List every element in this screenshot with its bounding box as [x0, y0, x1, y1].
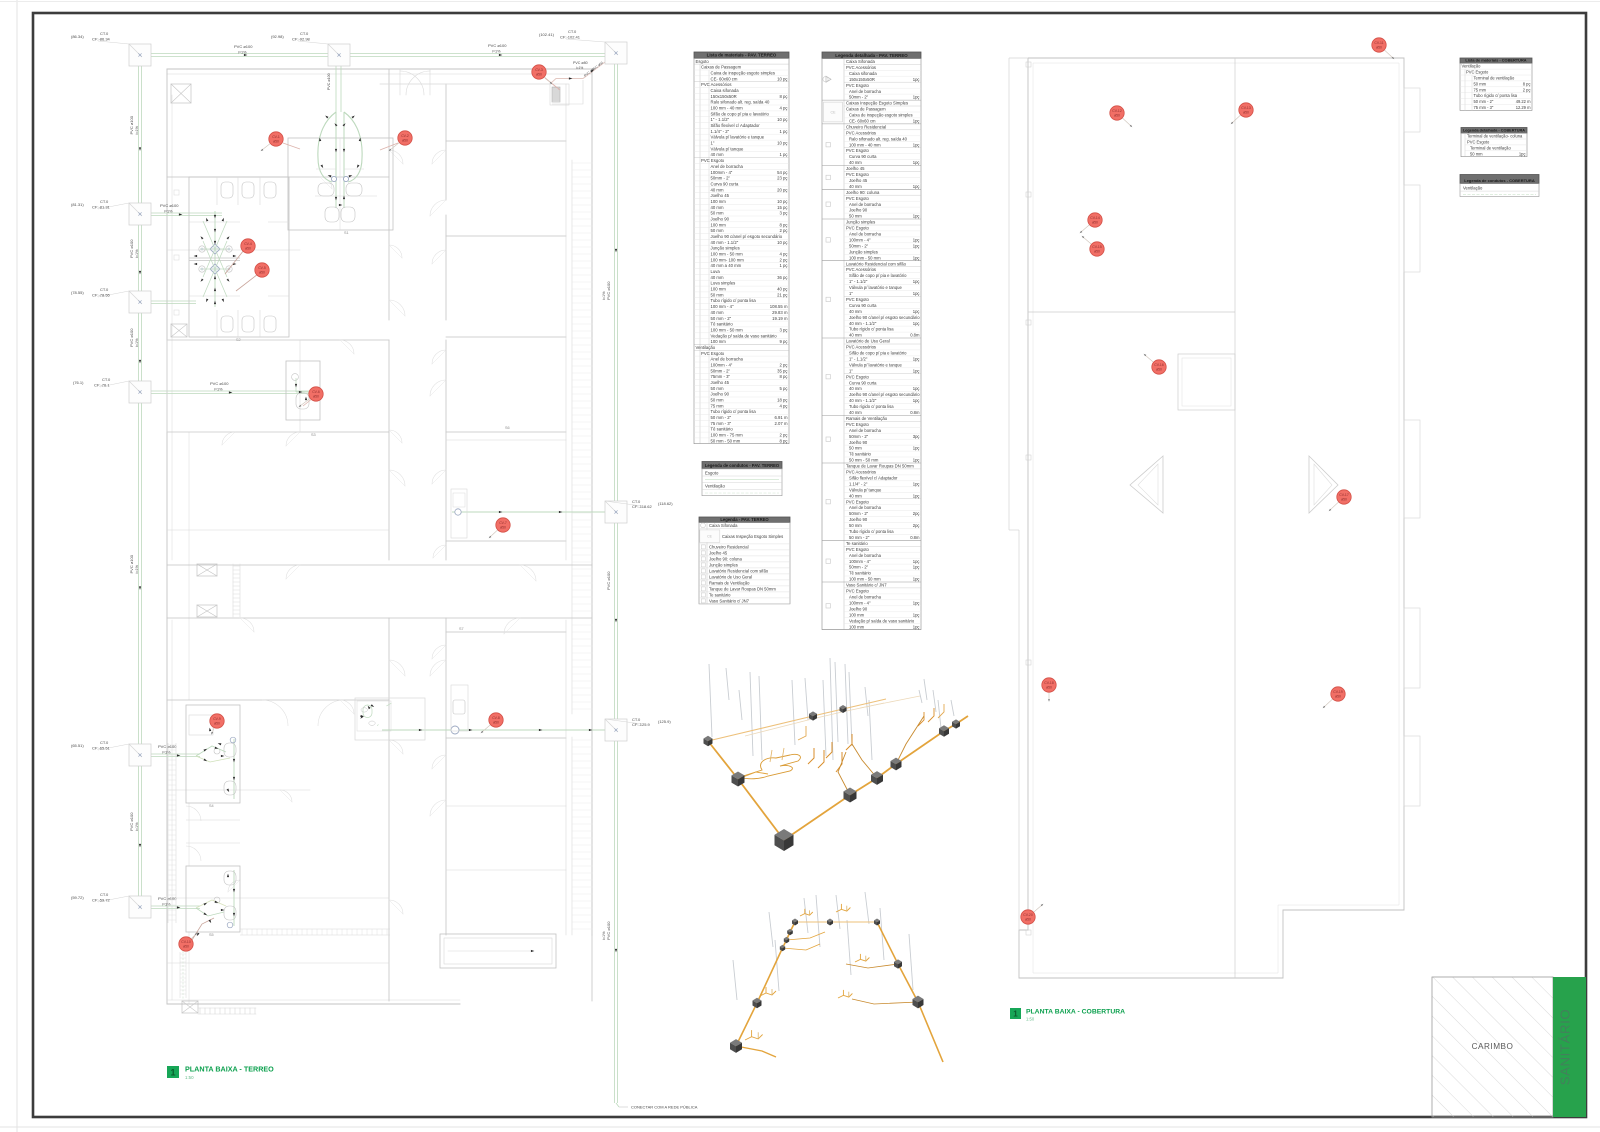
svg-text:ø50: ø50 — [1376, 46, 1382, 50]
svg-text:1: 1 — [170, 1068, 175, 1078]
svg-text:PVC Acessórios: PVC Acessórios — [701, 82, 731, 87]
svg-text:Curva 90 curta: Curva 90 curta — [849, 303, 877, 308]
svg-text:1" - 1.1/2": 1" - 1.1/2" — [711, 117, 730, 122]
svg-text:ø50: ø50 — [493, 721, 499, 725]
svg-text:Ramais de Ventilação: Ramais de Ventilação — [846, 416, 888, 421]
svg-text:1pç: 1pç — [913, 398, 920, 403]
svg-text:PVC Acessórios: PVC Acessórios — [846, 267, 876, 272]
svg-text:Ramais de Ventilação: Ramais de Ventilação — [709, 581, 750, 586]
svg-text:Esgoto: Esgoto — [696, 59, 710, 64]
svg-text:50 mm: 50 mm — [711, 398, 724, 403]
svg-text:100 mm - 50 mm: 100 mm - 50 mm — [711, 327, 744, 332]
svg-text:Sifão flexível c/ Adaptador: Sifão flexível c/ Adaptador — [711, 123, 761, 128]
svg-text:2pç: 2pç — [913, 523, 920, 528]
svg-text:ø50: ø50 — [273, 140, 279, 144]
svg-text:Tê sanitário: Tê sanitário — [849, 452, 872, 457]
svg-text:Tanque de Lavar Roupas DN 50mm: Tanque de Lavar Roupas DN 50mm — [846, 464, 914, 469]
svg-text:CV-16: CV-16 — [1154, 363, 1164, 367]
svg-text:CV-18: CV-18 — [1044, 681, 1054, 685]
svg-text:100 mm: 100 mm — [711, 199, 727, 204]
svg-text:ø50: ø50 — [1114, 114, 1120, 118]
svg-text:Lavatório de Uso Geral: Lavatório de Uso Geral — [846, 339, 890, 344]
svg-text:10 pç: 10 pç — [777, 141, 788, 146]
svg-text:CT.0: CT.0 — [100, 287, 109, 292]
svg-text:Anel de borracha: Anel de borracha — [849, 428, 882, 433]
svg-text:PVC Esgoto: PVC Esgoto — [846, 589, 869, 594]
svg-text:Joelho 90: coluna: Joelho 90: coluna — [709, 557, 742, 562]
svg-text:3pç: 3pç — [913, 434, 920, 439]
svg-text:29.83 m: 29.83 m — [772, 310, 788, 315]
svg-text:Anel de borracha: Anel de borracha — [849, 595, 882, 600]
svg-text:40 mm: 40 mm — [711, 310, 724, 315]
svg-text:CV-12: CV-12 — [1112, 109, 1122, 113]
svg-text:CT.0: CT.0 — [100, 892, 109, 897]
svg-text:Curva 90 curta: Curva 90 curta — [849, 154, 877, 159]
svg-text:1pç: 1pç — [913, 309, 920, 314]
svg-text:50mm - 2": 50mm - 2" — [849, 95, 869, 100]
svg-text:PVC Esgoto: PVC Esgoto — [701, 158, 725, 163]
svg-text:CONECTAR COM A REDE PÚBLICA: CONECTAR COM A REDE PÚBLICA — [631, 1105, 698, 1110]
svg-text:Lista de materiais - COBERTURA: Lista de materiais - COBERTURA — [1465, 58, 1526, 63]
svg-text:PVC Esgoto: PVC Esgoto — [846, 172, 869, 177]
svg-text:CV-7: CV-7 — [499, 521, 507, 525]
svg-text:15 pç: 15 pç — [777, 205, 788, 210]
svg-text:1.1/4" - 2": 1.1/4" - 2" — [849, 481, 868, 486]
svg-text:100 mm: 100 mm — [711, 222, 727, 227]
svg-text:Joelho 90 c/anel p/ esgoto sec: Joelho 90 c/anel p/ esgoto secundário — [711, 234, 783, 239]
svg-text:1pç: 1pç — [913, 446, 920, 451]
svg-text:PVC Esgoto: PVC Esgoto — [1466, 70, 1489, 75]
svg-text:100 mm - 75 mm: 100 mm - 75 mm — [711, 433, 744, 438]
svg-text:Te sanitário: Te sanitário — [846, 541, 868, 546]
svg-text:50 mm - 2": 50 mm - 2" — [849, 535, 870, 540]
svg-text:Junção simples: Junção simples — [846, 220, 875, 225]
svg-text:10 pç: 10 pç — [777, 240, 788, 245]
svg-text:S6: S6 — [505, 426, 510, 430]
svg-text:PVC Esgoto: PVC Esgoto — [846, 422, 869, 427]
svg-text:PVC Esgoto: PVC Esgoto — [846, 374, 869, 379]
svg-text:1pç: 1pç — [913, 255, 920, 260]
svg-text:ø50: ø50 — [1025, 918, 1031, 922]
svg-text:100 mm - 40 mm: 100 mm - 40 mm — [711, 106, 744, 111]
svg-text:40 mm a 40 mm: 40 mm a 40 mm — [711, 263, 742, 268]
svg-text:CV-13: CV-13 — [1241, 106, 1251, 110]
svg-text:100 mm - 4": 100 mm - 4" — [711, 304, 734, 309]
svg-text:ø50: ø50 — [536, 73, 542, 77]
svg-text:2 pç: 2 pç — [779, 433, 788, 438]
svg-text:Caixas de Passagem: Caixas de Passagem — [846, 107, 886, 112]
svg-text:PLANTA BAIXA - COBERTURA: PLANTA BAIXA - COBERTURA — [1026, 1009, 1125, 1016]
svg-text:1pç: 1pç — [913, 559, 920, 564]
svg-text:75 mm - 3": 75 mm - 3" — [711, 421, 732, 426]
svg-text:1": 1" — [849, 291, 853, 296]
svg-text:1pç: 1pç — [1519, 151, 1526, 156]
svg-text:40 mm: 40 mm — [849, 410, 862, 415]
svg-text:35 pç: 35 pç — [777, 368, 788, 373]
svg-text:Terminal de ventilação: Terminal de ventilação — [1470, 145, 1511, 150]
svg-text:150x150x50R: 150x150x50R — [711, 94, 737, 99]
svg-text:CF:-102.41: CF:-102.41 — [560, 35, 581, 40]
svg-text:(102.41): (102.41) — [539, 32, 555, 37]
svg-text:PVC ø100: PVC ø100 — [234, 44, 253, 49]
svg-text:CE: CE — [707, 535, 713, 539]
svg-text:PVC ø100: PVC ø100 — [129, 554, 134, 573]
svg-text:ø50: ø50 — [313, 395, 319, 399]
svg-text:40 mm: 40 mm — [849, 309, 862, 314]
svg-text:CV-19: CV-19 — [1333, 690, 1343, 694]
svg-text:100 mm: 100 mm — [849, 612, 865, 617]
svg-text:i=1%: i=1% — [162, 903, 171, 907]
svg-text:Caixas de Passagem: Caixas de Passagem — [701, 65, 742, 70]
svg-text:50mm - 2": 50mm - 2" — [711, 368, 731, 373]
svg-text:(125.9): (125.9) — [658, 719, 671, 724]
svg-text:Sifão de copo p/ pia e lavatór: Sifão de copo p/ pia e lavatório — [711, 111, 770, 116]
svg-text:Legenda de condutos - PAV. TER: Legenda de condutos - PAV. TERREO — [705, 463, 780, 468]
svg-text:Joelho 45: Joelho 45 — [709, 551, 728, 556]
svg-text:49.22 m: 49.22 m — [1516, 99, 1531, 104]
svg-text:1": 1" — [711, 141, 715, 146]
svg-text:ø50: ø50 — [1094, 250, 1100, 254]
svg-text:Sifão de copo p/ pia e lavatór: Sifão de copo p/ pia e lavatório — [849, 273, 907, 278]
svg-text:PVC Esgoto: PVC Esgoto — [1467, 140, 1490, 145]
svg-text:CV-4: CV-4 — [244, 242, 252, 246]
svg-text:1:50: 1:50 — [1026, 1017, 1035, 1022]
svg-text:Chuveiro Residencial: Chuveiro Residencial — [846, 125, 886, 130]
svg-text:CF:-59.72: CF:-59.72 — [92, 898, 111, 903]
svg-text:50 mm - 50 mm: 50 mm - 50 mm — [711, 438, 741, 443]
svg-text:CT.0: CT.0 — [568, 29, 577, 34]
svg-text:50 mm - 2": 50 mm - 2" — [711, 316, 732, 321]
svg-text:(92.98): (92.98) — [271, 34, 284, 39]
svg-text:4 pç: 4 pç — [779, 403, 788, 408]
svg-text:Joelho 90: Joelho 90 — [711, 392, 730, 397]
svg-text:Ralo sifonado alt. reg. saída: Ralo sifonado alt. reg. saída 40 — [849, 136, 908, 141]
svg-text:CV-9: CV-9 — [213, 717, 221, 721]
svg-text:CF:-78.55: CF:-78.55 — [92, 293, 111, 298]
svg-text:40 mm: 40 mm — [711, 187, 724, 192]
svg-text:1pç: 1pç — [913, 612, 920, 617]
svg-text:Anel de borracha: Anel de borracha — [849, 505, 882, 510]
svg-text:40 mm: 40 mm — [849, 160, 862, 165]
svg-text:2 pç: 2 pç — [779, 363, 788, 368]
svg-text:Joelho 45: Joelho 45 — [711, 380, 730, 385]
svg-text:75mm - 3": 75mm - 3" — [711, 374, 731, 379]
svg-text:CARIMBO: CARIMBO — [1472, 1042, 1514, 1051]
svg-text:20 pç: 20 pç — [777, 187, 788, 192]
svg-text:Vedação p/ saída de vaso sanit: Vedação p/ saída de vaso sanitário — [849, 618, 915, 623]
svg-text:50mm - 2": 50mm - 2" — [849, 434, 869, 439]
svg-text:Lista de materiais - PAV. TERR: Lista de materiais - PAV. TERREO — [707, 53, 777, 58]
svg-text:Curva 90 curta: Curva 90 curta — [849, 380, 877, 385]
svg-text:Válvula p/ lavatório e tanque: Válvula p/ lavatório e tanque — [711, 135, 765, 140]
svg-text:i=1%: i=1% — [602, 931, 606, 940]
svg-text:1pç: 1pç — [913, 243, 920, 248]
svg-text:40 mm - 1.1/2": 40 mm - 1.1/2" — [711, 240, 739, 245]
svg-text:1pç: 1pç — [913, 142, 920, 147]
svg-text:ø50: ø50 — [259, 271, 265, 275]
svg-text:6.91 m: 6.91 m — [775, 415, 788, 420]
svg-text:Terminal de ventilação: Terminal de ventilação — [1474, 76, 1515, 81]
svg-text:CT.0: CT.0 — [100, 31, 109, 36]
svg-text:i=1%: i=1% — [214, 388, 223, 392]
svg-text:CV-10: CV-10 — [181, 940, 191, 944]
svg-text:Tubo rígido c/ ponta lisa: Tubo rígido c/ ponta lisa — [1474, 93, 1518, 98]
svg-text:2 pç: 2 pç — [779, 228, 788, 233]
svg-text:PLANTA BAIXA - TERREO: PLANTA BAIXA - TERREO — [185, 1065, 274, 1074]
svg-text:Válvula p/ lavatório e tanque: Válvula p/ lavatório e tanque — [849, 285, 903, 290]
svg-text:CT.0: CT.0 — [100, 740, 109, 745]
svg-text:100mm - 4": 100mm - 4" — [849, 600, 871, 605]
svg-text:40 mm: 40 mm — [711, 152, 724, 157]
svg-text:50 mm: 50 mm — [711, 211, 724, 216]
svg-text:8 pç: 8 pç — [779, 438, 788, 443]
svg-text:ø50: ø50 — [1335, 695, 1341, 699]
svg-text:PVC Esgoto: PVC Esgoto — [846, 196, 869, 201]
svg-text:(59.72): (59.72) — [71, 895, 84, 900]
svg-text:Lavatório Residencial com sif: Lavatório Residencial com sifão — [709, 569, 769, 574]
svg-text:CV-2: CV-2 — [401, 134, 409, 138]
svg-text:1pç: 1pç — [913, 624, 920, 629]
svg-text:Luva: Luva — [711, 269, 721, 274]
svg-text:Joelho 45: Joelho 45 — [711, 193, 730, 198]
svg-text:50 mm: 50 mm — [711, 228, 724, 233]
svg-text:1pç: 1pç — [913, 565, 920, 570]
svg-text:8 pç: 8 pç — [779, 374, 788, 379]
svg-text:40 pç: 40 pç — [777, 287, 788, 292]
svg-text:CV-6: CV-6 — [312, 390, 320, 394]
svg-text:ø50: ø50 — [1341, 498, 1347, 502]
svg-text:i=1%: i=1% — [164, 210, 173, 214]
svg-text:Vedação p/ saída de vaso sanit: Vedação p/ saída de vaso sanitário — [711, 333, 778, 338]
svg-text:Anel de borracha: Anel de borracha — [711, 357, 744, 362]
svg-text:1pç: 1pç — [913, 458, 920, 463]
svg-text:1pç: 1pç — [913, 279, 920, 284]
svg-text:Joelho 90: Joelho 90 — [849, 517, 868, 522]
svg-text:CE- 60x60 cm: CE- 60x60 cm — [711, 76, 738, 81]
svg-text:ø50: ø50 — [500, 526, 506, 530]
svg-text:1pç: 1pç — [913, 481, 920, 486]
svg-text:1.1/4" - 2": 1.1/4" - 2" — [711, 129, 730, 134]
svg-text:CV-11: CV-11 — [1374, 41, 1383, 45]
svg-text:S4: S4 — [209, 804, 214, 808]
svg-text:10 pç: 10 pç — [777, 117, 788, 122]
svg-text:0.8m: 0.8m — [910, 410, 920, 415]
svg-text:PVC ø100: PVC ø100 — [606, 921, 611, 940]
svg-text:ø50: ø50 — [1156, 368, 1162, 372]
svg-text:Legenda detalhada - COBERTURA: Legenda detalhada - COBERTURA — [1463, 129, 1525, 133]
svg-text:1pç: 1pç — [913, 291, 920, 296]
svg-text:CT.0: CT.0 — [102, 377, 111, 382]
svg-text:CF:-92.98: CF:-92.98 — [292, 37, 311, 42]
svg-text:75 mm: 75 mm — [711, 403, 724, 408]
svg-text:Anel de borracha: Anel de borracha — [711, 164, 744, 169]
svg-text:Joelho 45: Joelho 45 — [846, 166, 865, 171]
svg-text:i=1%: i=1% — [135, 338, 139, 347]
svg-text:Tê sanitário: Tê sanitário — [849, 571, 872, 576]
svg-text:CV-8: CV-8 — [492, 716, 500, 720]
svg-text:Caixa sifonada: Caixa sifonada — [711, 88, 740, 93]
svg-text:Joelho 90: Joelho 90 — [849, 606, 868, 611]
svg-text:100mm - 4": 100mm - 4" — [849, 559, 871, 564]
svg-text:CF:-65.51: CF:-65.51 — [92, 746, 111, 751]
svg-text:40 mm - 1.1/2": 40 mm - 1.1/2" — [849, 398, 877, 403]
svg-text:PVC Acessórios: PVC Acessórios — [846, 65, 876, 70]
svg-text:CV-15: CV-15 — [1092, 245, 1102, 249]
svg-text:Caixas Inspeção Esgoto Simpl: Caixas Inspeção Esgoto Simples — [722, 534, 783, 539]
svg-text:PVC Esgoto: PVC Esgoto — [846, 83, 869, 88]
svg-text:50 mm - 2": 50 mm - 2" — [1474, 99, 1494, 104]
svg-text:PVC ø100: PVC ø100 — [129, 115, 134, 134]
svg-text:Anel de borracha: Anel de borracha — [849, 553, 882, 558]
svg-text:PVC ø80: PVC ø80 — [573, 61, 588, 65]
svg-text:i=1%: i=1% — [576, 66, 583, 70]
svg-text:PVC ø100: PVC ø100 — [129, 239, 134, 258]
svg-text:Caixa Sifonada: Caixa Sifonada — [846, 59, 875, 64]
svg-text:(86.34): (86.34) — [71, 34, 84, 39]
svg-text:50 mm: 50 mm — [711, 386, 724, 391]
svg-text:10 pç: 10 pç — [777, 76, 788, 81]
svg-text:100 mm - 40 mm: 100 mm - 40 mm — [849, 142, 881, 147]
svg-text:CF:-125.9: CF:-125.9 — [632, 722, 651, 727]
svg-text:i=1%: i=1% — [602, 291, 606, 300]
svg-text:CV-17: CV-17 — [1339, 493, 1349, 497]
svg-text:Tubo rígido c/ ponta lisa: Tubo rígido c/ ponta lisa — [849, 327, 894, 332]
svg-text:1pç: 1pç — [913, 214, 920, 219]
svg-text:Joelho 90: coluna: Joelho 90: coluna — [846, 190, 880, 195]
svg-text:1 pç: 1 pç — [779, 152, 788, 157]
svg-text:ø50: ø50 — [402, 139, 408, 143]
svg-text:CE: CE — [831, 111, 837, 115]
svg-text:1 pç: 1 pç — [779, 129, 788, 134]
svg-text:40 mm: 40 mm — [711, 275, 724, 280]
svg-text:1pç: 1pç — [913, 184, 920, 189]
svg-text:Tubo rígido c/ ponta lisa: Tubo rígido c/ ponta lisa — [849, 529, 894, 534]
svg-text:150x150x50R: 150x150x50R — [849, 77, 875, 82]
svg-text:PVC Esgoto: PVC Esgoto — [846, 499, 869, 504]
svg-text:40 mm: 40 mm — [849, 386, 862, 391]
svg-text:2 pç: 2 pç — [1523, 87, 1531, 92]
svg-text:CV-3: CV-3 — [535, 68, 543, 72]
svg-text:100 mm: 100 mm — [711, 339, 727, 344]
svg-text:Joelho 90 c/anel p/ esgoto sec: Joelho 90 c/anel p/ esgoto secundário — [849, 392, 920, 397]
svg-text:Válvula p/ lavatório e tanque: Válvula p/ lavatório e tanque — [849, 362, 903, 367]
svg-text:PVC ø100: PVC ø100 — [488, 43, 507, 48]
svg-text:Vaso Sanitário c/ JN7: Vaso Sanitário c/ JN7 — [709, 599, 750, 604]
svg-text:5 pç: 5 pç — [779, 386, 788, 391]
svg-text:Legenda de condutos - COBERTUR: Legenda de condutos - COBERTURA — [1464, 178, 1535, 183]
svg-text:54 pç: 54 pç — [777, 170, 788, 175]
svg-text:36 pç: 36 pç — [777, 275, 788, 280]
svg-text:Ventilação: Ventilação — [696, 345, 716, 350]
svg-text:1pç: 1pç — [913, 600, 920, 605]
svg-text:4 pç: 4 pç — [779, 106, 788, 111]
svg-text:19.19 m: 19.19 m — [772, 316, 788, 321]
svg-text:ø50: ø50 — [1046, 686, 1052, 690]
svg-text:1": 1" — [849, 368, 853, 373]
svg-text:Ventilação: Ventilação — [1462, 64, 1482, 69]
svg-text:50mm - 2": 50mm - 2" — [711, 176, 731, 181]
svg-text:50 mm: 50 mm — [1470, 151, 1483, 156]
svg-text:1pç: 1pç — [913, 368, 920, 373]
svg-text:Válvula p/ tanque: Válvula p/ tanque — [849, 487, 882, 492]
svg-text:2.07 m: 2.07 m — [775, 421, 788, 426]
svg-text:108.55 m: 108.55 m — [770, 304, 788, 309]
svg-text:50 mm: 50 mm — [1474, 81, 1487, 86]
svg-text:50 mm: 50 mm — [849, 214, 862, 219]
svg-text:PVC Esgoto: PVC Esgoto — [846, 148, 869, 153]
svg-text:ø50: ø50 — [1243, 111, 1249, 115]
svg-text:Legenda - PAV. TERREO: Legenda - PAV. TERREO — [720, 517, 769, 522]
svg-text:Lavatório Residencial com sif: Lavatório Residencial com sifão — [846, 261, 907, 266]
svg-text:PVC ø100: PVC ø100 — [210, 381, 229, 386]
svg-text:Luva simples: Luva simples — [711, 281, 736, 286]
svg-text:1pç: 1pç — [913, 77, 920, 82]
svg-text:Junção simples: Junção simples — [849, 249, 878, 254]
svg-text:Esgoto: Esgoto — [705, 470, 719, 475]
svg-text:50mm - 2": 50mm - 2" — [849, 565, 869, 570]
svg-text:2 pç: 2 pç — [779, 257, 788, 262]
svg-text:Caixa de inspeção esgoto simpl: Caixa de inspeção esgoto simples — [711, 71, 776, 76]
svg-text:1pç: 1pç — [913, 386, 920, 391]
svg-text:PVC ø100: PVC ø100 — [129, 328, 134, 347]
svg-text:Legenda detalhada - PAV. TERRE: Legenda detalhada - PAV. TERREO — [835, 53, 908, 58]
svg-text:1pç: 1pç — [913, 238, 920, 243]
svg-text:CF:-76.1: CF:-76.1 — [94, 383, 110, 388]
svg-text:PVC ø100: PVC ø100 — [327, 73, 331, 90]
svg-text:CV-20: CV-20 — [1023, 913, 1033, 917]
svg-text:Curva 90 curta: Curva 90 curta — [711, 181, 740, 186]
svg-text:S1: S1 — [344, 231, 349, 235]
svg-text:CE- 60x60 cm: CE- 60x60 cm — [849, 119, 876, 124]
svg-text:1pç: 1pç — [913, 160, 920, 165]
svg-text:CF:-86.34: CF:-86.34 — [92, 37, 111, 42]
svg-text:50mm - 2": 50mm - 2" — [849, 243, 869, 248]
svg-text:i=1%: i=1% — [135, 564, 139, 573]
svg-text:PVC Esgoto: PVC Esgoto — [846, 226, 869, 231]
svg-text:50 mm: 50 mm — [849, 523, 862, 528]
svg-text:1" - 1.1/2": 1" - 1.1/2" — [849, 357, 868, 362]
svg-text:23 pç: 23 pç — [777, 176, 788, 181]
svg-text:i=1%: i=1% — [492, 50, 501, 54]
svg-text:2pç: 2pç — [913, 511, 920, 516]
svg-text:CV-1: CV-1 — [272, 135, 280, 139]
svg-text:1pç: 1pç — [913, 357, 920, 362]
svg-text:8 pç: 8 pç — [779, 94, 788, 99]
svg-text:100 mm - 50 mm: 100 mm - 50 mm — [849, 255, 881, 260]
svg-text:PVC Esgoto: PVC Esgoto — [846, 297, 869, 302]
svg-text:75 mm: 75 mm — [1474, 87, 1487, 92]
svg-text:Anel de borracha: Anel de borracha — [849, 202, 882, 207]
svg-text:ø50: ø50 — [183, 945, 189, 949]
svg-text:CF:-81.31: CF:-81.31 — [92, 205, 111, 210]
svg-text:CT.0: CT.0 — [100, 199, 109, 204]
svg-text:i=1%: i=1% — [238, 51, 247, 55]
svg-text:Junção simples: Junção simples — [711, 246, 740, 251]
svg-text:PVC Esgoto: PVC Esgoto — [846, 547, 869, 552]
svg-text:PVC Acessórios: PVC Acessórios — [846, 345, 876, 350]
svg-text:PVC ø100: PVC ø100 — [606, 281, 611, 300]
svg-text:Anel de borracha: Anel de borracha — [849, 232, 882, 237]
svg-text:i=1%: i=1% — [135, 822, 139, 831]
svg-text:Terminal de ventilação- coluna: Terminal de ventilação- coluna — [1467, 134, 1523, 139]
svg-text:Tanque de Lavar Roupas DN 50mm: Tanque de Lavar Roupas DN 50mm — [709, 587, 776, 592]
svg-text:1pç: 1pç — [913, 119, 920, 124]
svg-text:S3: S3 — [311, 433, 316, 437]
svg-text:1 pç: 1 pç — [779, 263, 788, 268]
svg-text:Junção simples: Junção simples — [709, 563, 738, 568]
svg-text:Joelho 90: Joelho 90 — [849, 440, 868, 445]
svg-text:100 mm- 100 mm: 100 mm- 100 mm — [711, 257, 745, 262]
